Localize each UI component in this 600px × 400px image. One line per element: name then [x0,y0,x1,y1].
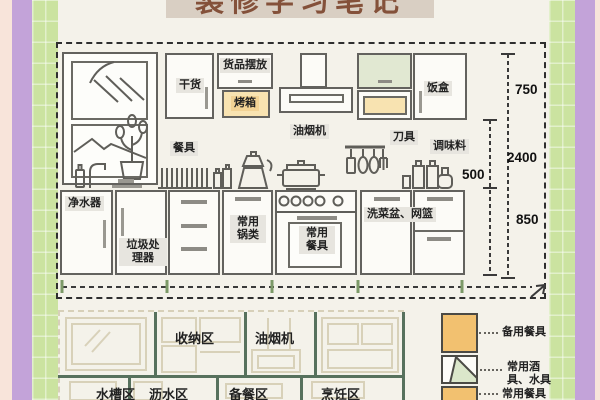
label-dry-goods: 干货 [176,78,204,93]
cabinet-drawers [168,190,220,275]
label-seasoning: 调味料 [430,139,469,154]
label-water-purifier: 净水器 [65,196,104,211]
cabinet-sink [360,190,412,275]
kitchen-window [62,52,158,185]
cabinet-handle [103,220,106,248]
label-range-hood: 油烟机 [290,124,329,139]
zone-cooking: 烹饪区 [318,386,363,400]
legend-label-drinkware: 常用酒具、水具 [504,360,562,388]
window-lower-pane [71,124,148,178]
label-knives: 刀具 [390,130,418,145]
plan-divider [244,312,247,377]
legend-leader-dots [480,369,502,371]
frame-strip-purple-right [575,0,595,400]
dimension-upper-height: 750 [515,82,538,97]
cabinet-green-front [357,53,412,89]
hood-panel [289,94,344,103]
cabinet-handle [121,208,124,236]
page-title: 装修学习笔记 [166,0,434,18]
dimension-mid-gap: 500 [462,167,485,182]
plan-divider [314,312,317,377]
label-garbage-disposal: 垃圾处理器 [119,238,167,266]
open-shelf [357,90,412,120]
label-goods-display: 货品摆放 [220,58,270,73]
cabinet-handle [205,87,208,109]
zone-sink: 水槽区 [93,386,138,400]
oven-handle [297,216,337,220]
hood-chimney [300,53,327,88]
dimension-total-height: 2400 [507,150,537,165]
cabinet-handle [427,237,451,241]
zone-prep: 备餐区 [226,386,271,400]
infographic-canvas: 装修学习笔记 [0,0,600,400]
dimension-base-height: 850 [516,212,539,227]
drawer-handle [181,200,207,204]
cabinet-handle [235,197,261,201]
frame-strip-purple-left [12,0,32,400]
label-tableware: 餐具 [170,141,198,156]
shelf-tan-inset [363,96,407,115]
hood-body [279,87,353,113]
plan-divider [300,378,303,400]
legend-swatch-drinkware [441,355,478,384]
cabinet-basket [413,190,465,275]
label-lunch-box: 饭盒 [424,81,452,96]
label-oven: 烤箱 [231,96,259,111]
cabinet-handle [238,80,252,83]
plan-divider [154,312,157,377]
plan-divider [216,378,219,400]
window-upper-pane [71,61,148,120]
cabinet-handle [378,80,392,83]
label-common-pots: 常用锅类 [230,215,266,243]
legend-swatch-common-tableware [441,386,478,400]
legend-label-spare-tableware: 备用餐具 [499,325,549,340]
plan-divider-horizontal [58,375,405,378]
cabinet-handle [374,197,400,201]
cabinet-handle [419,91,422,113]
legend-leader-dots [479,393,498,395]
frame-strip-green-left [32,0,58,400]
shelf-line [415,230,463,232]
cabinet-handle [427,197,453,201]
legend-leader-dots [479,332,498,334]
label-common-tableware: 常用餐具 [299,226,335,254]
frame-strip-green-right [549,0,575,400]
zone-drain: 沥水区 [146,386,191,400]
zone-storage: 收纳区 [172,330,217,348]
legend-label-common-tableware: 常用餐具 [499,387,549,400]
legend-swatch-spare-tableware [441,313,478,353]
zone-range-hood: 油烟机 [252,330,297,348]
plan-divider [402,312,405,400]
label-sink-basket: 洗菜盆、网篮 [364,207,436,222]
drawer-handle [181,247,207,251]
drawer-handle [181,224,207,228]
